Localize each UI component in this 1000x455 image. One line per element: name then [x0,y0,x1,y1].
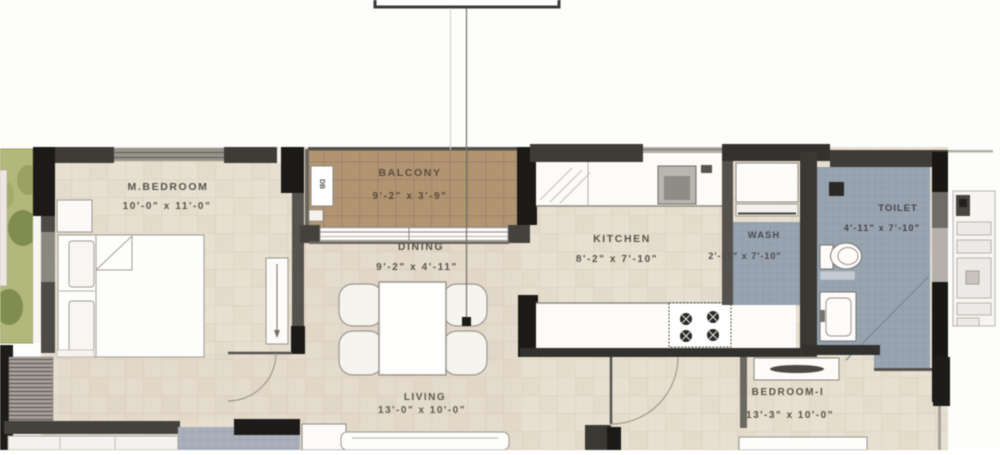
svg-text:KITCHEN: KITCHEN [593,233,651,245]
svg-text:9'-2" x 4'-11": 9'-2" x 4'-11" [376,262,458,273]
svg-text:M.BEDROOM: M.BEDROOM [128,181,209,193]
svg-text:BEDROOM-I: BEDROOM-I [752,387,825,398]
svg-text:10'-0" x 11'-0": 10'-0" x 11'-0" [123,201,212,212]
svg-text:TOILET: TOILET [878,203,918,214]
svg-text:LIVING: LIVING [404,392,446,403]
svg-text:9'-2" x 3'-9": 9'-2" x 3'-9" [372,191,447,202]
svg-text:8'-2" x 7'-10": 8'-2" x 7'-10" [576,254,658,265]
svg-text:DB: DB [318,179,325,189]
svg-text:13'-0" x 10'-0": 13'-0" x 10'-0" [378,405,466,416]
svg-text:2'-11" x 7'-10": 2'-11" x 7'-10" [708,251,781,261]
svg-text:WASH: WASH [748,230,781,241]
svg-text:BALCONY: BALCONY [378,167,441,179]
svg-text:13'-3" x 10'-0": 13'-3" x 10'-0" [746,410,834,421]
svg-text:DINING: DINING [398,241,444,253]
svg-text:4'-11" x 7'-10": 4'-11" x 7'-10" [844,223,920,233]
